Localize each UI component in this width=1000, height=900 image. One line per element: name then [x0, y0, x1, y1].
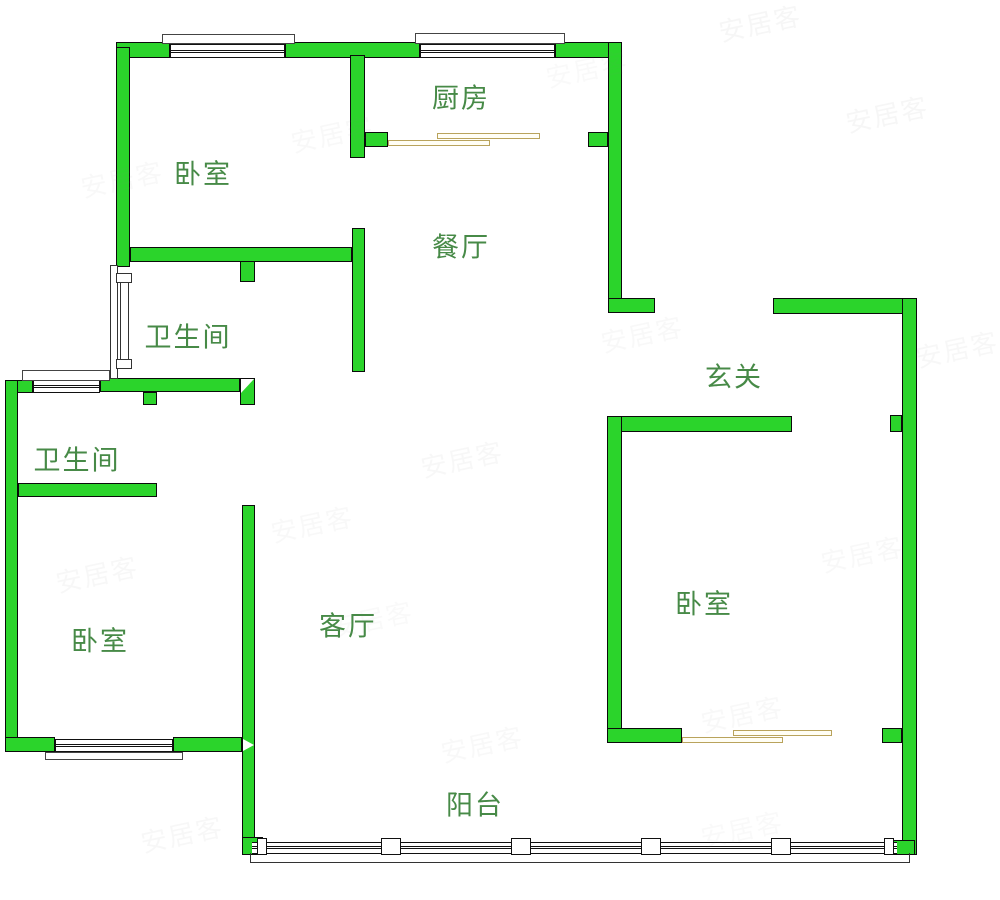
- window-pane-line: [421, 52, 554, 53]
- window-pane-line: [171, 50, 284, 51]
- bathroom-top-label: 卫生间: [145, 325, 232, 352]
- sill-bedroom3: [45, 752, 183, 760]
- window-kitchen: [420, 44, 555, 58]
- living-west-wall-wall: [242, 505, 255, 855]
- entry-top-wall-left-wall: [608, 298, 655, 313]
- bedroom2-bottom-wall-wall: [607, 728, 682, 743]
- kitchen-door-panel-b-sliding-door: [437, 133, 540, 139]
- outer-left-lower-wall: [5, 380, 18, 752]
- bath-middle-wall-wall: [100, 378, 240, 392]
- bath1-door-jamb-top-wall: [240, 261, 255, 282]
- bedroom2-left-wall-wall: [607, 416, 622, 743]
- bedroom-right-label: 卧室: [675, 592, 733, 619]
- watermark-6: 安居客: [597, 307, 687, 361]
- watermark-9: 安居客: [267, 497, 357, 551]
- kitchen-label: 厨房: [432, 86, 490, 113]
- living-room-label: 客厅: [319, 614, 377, 641]
- bath1-door-block-top: [116, 273, 132, 283]
- window-pane-line: [56, 746, 172, 747]
- kitchen-door-jamb-right-wall: [588, 132, 608, 147]
- bedroom1-bottom-wall-wall: [130, 247, 352, 262]
- bath1-door-leaf: [120, 283, 129, 359]
- outer-left-upper-wall: [116, 47, 130, 267]
- watermark-2: 安居客: [842, 87, 932, 141]
- watermark-1: 安居客: [715, 0, 805, 49]
- watermark-15: 安居客: [137, 807, 227, 861]
- entry-top-wall-right-wall: [773, 298, 917, 314]
- kitchen-door-panel-a-sliding-door: [388, 140, 490, 146]
- bedroom3-bottom-seg-left-wall: [5, 737, 55, 752]
- window-pane-line: [34, 387, 99, 388]
- entry-hall-label: 玄关: [705, 365, 763, 392]
- window-bedroom1: [170, 44, 285, 58]
- bath2-bottom-wall-wall: [18, 483, 157, 497]
- kitchen-left-wall-wall: [350, 55, 365, 158]
- balcony-outer-line: [250, 853, 910, 863]
- watermark-10: 安居客: [52, 547, 142, 601]
- window-pane-line: [421, 50, 554, 51]
- watermark-8: 安居客: [417, 432, 507, 486]
- bedroom2-top-wall-wall: [607, 416, 792, 432]
- window-bedroom3: [55, 739, 173, 752]
- sill-bedroom1: [162, 34, 295, 44]
- window-pane-line: [171, 52, 284, 53]
- bedroom2-door-panel-b-sliding-door: [733, 730, 832, 736]
- kitchen-door-jamb-left-wall: [365, 132, 388, 147]
- window-bath2: [33, 380, 100, 393]
- dining-label: 餐厅: [432, 235, 490, 262]
- window-pane-line: [56, 744, 172, 745]
- bedroom-bottom-left-label: 卧室: [71, 629, 129, 656]
- kitchen-right-wall-wall: [608, 42, 622, 313]
- outer-right-wall-wall: [902, 298, 917, 855]
- bedroom2-door-jamb-wall: [890, 415, 902, 432]
- balcony-label: 阳台: [446, 793, 504, 820]
- bath-middle-stub-wall: [143, 392, 157, 405]
- watermark-7: 安居客: [912, 322, 1000, 376]
- sill-bath2: [22, 370, 110, 381]
- railing-line: [252, 848, 897, 849]
- railing-line: [252, 846, 897, 847]
- watermark-11: 安居客: [817, 527, 907, 581]
- floor-plan: 卧室厨房餐厅卫生间卫生间玄关卧室卧室客厅阳台安居客安居客安居客安居客安居客安居客…: [0, 0, 1000, 900]
- window-pane-line: [34, 385, 99, 386]
- bathroom-lower-label: 卫生间: [34, 448, 121, 475]
- dining-left-wall-wall: [352, 228, 365, 372]
- bedroom3-bottom-seg-right-wall: [173, 737, 242, 752]
- bath1-door-block-bottom: [116, 359, 132, 369]
- bedroom2-bottom-stub-wall: [882, 728, 902, 743]
- bedroom-top-left-label: 卧室: [174, 162, 232, 189]
- watermark-14: 安居客: [437, 717, 527, 771]
- bedroom2-door-panel-a-sliding-door: [682, 737, 783, 743]
- sill-kitchen: [415, 33, 565, 44]
